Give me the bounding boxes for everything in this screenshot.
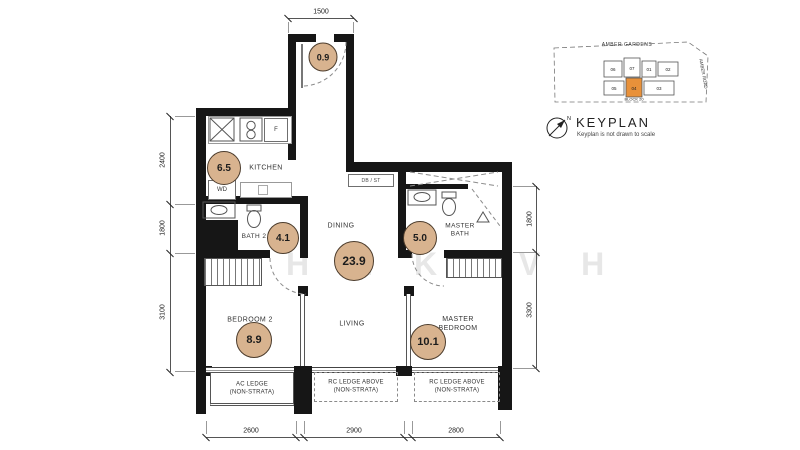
room-label-bath2: BATH 2 bbox=[242, 233, 267, 241]
unit-label-03: 03 bbox=[656, 86, 662, 91]
area-circle-master-bedroom: 10.1 bbox=[410, 324, 446, 360]
area-circle-entry: 0.9 bbox=[309, 43, 338, 72]
block-label: BLOCK 20 bbox=[624, 97, 644, 102]
room-label-kitchen: KITCHEN bbox=[249, 163, 283, 172]
unit-label-01: 01 bbox=[646, 67, 652, 72]
street-top-label: AMBER GARDENS bbox=[602, 42, 653, 48]
room-label-dining: DINING bbox=[328, 221, 355, 230]
dim-2800: 2800 bbox=[448, 428, 464, 435]
dim-1800-left: 1800 bbox=[160, 220, 167, 236]
unit-label-06: 06 bbox=[610, 67, 616, 72]
dim-3300: 3300 bbox=[527, 302, 534, 318]
floor-plan-page: H N K OV H F WD bbox=[0, 0, 800, 450]
unit-label-05: 05 bbox=[611, 86, 617, 91]
dim-2600: 2600 bbox=[243, 428, 259, 435]
dim-3100: 3100 bbox=[160, 304, 167, 320]
keyplan-title: KEYPLAN bbox=[576, 115, 650, 130]
north-compass-icon: N bbox=[544, 112, 574, 142]
room-label-living: LIVING bbox=[339, 319, 364, 328]
keyplan-note: Keyplan is not drawn to scale bbox=[577, 132, 655, 138]
room-label-master-bath: MASTER BATH bbox=[439, 223, 481, 240]
dim-1800-right: 1800 bbox=[527, 211, 534, 227]
dim-2400: 2400 bbox=[160, 152, 167, 168]
dim-1500: 1500 bbox=[313, 9, 329, 16]
dim-2900: 2900 bbox=[346, 428, 362, 435]
svg-text:N: N bbox=[567, 116, 571, 122]
area-circle-bath2: 4.1 bbox=[267, 222, 299, 254]
unit-label-04: 04 bbox=[631, 86, 637, 91]
area-circle-master-bath: 5.0 bbox=[403, 221, 437, 255]
keyplan-map: AMBER GARDENS AMBER ROAD 06 07 01 02 05 … bbox=[542, 36, 718, 108]
area-circle-dining: 23.9 bbox=[334, 241, 374, 281]
area-circle-bedroom2: 8.9 bbox=[236, 322, 272, 358]
unit-label-02: 02 bbox=[665, 67, 671, 72]
unit-label-07: 07 bbox=[629, 66, 635, 71]
area-circle-kitchen: 6.5 bbox=[207, 151, 241, 185]
